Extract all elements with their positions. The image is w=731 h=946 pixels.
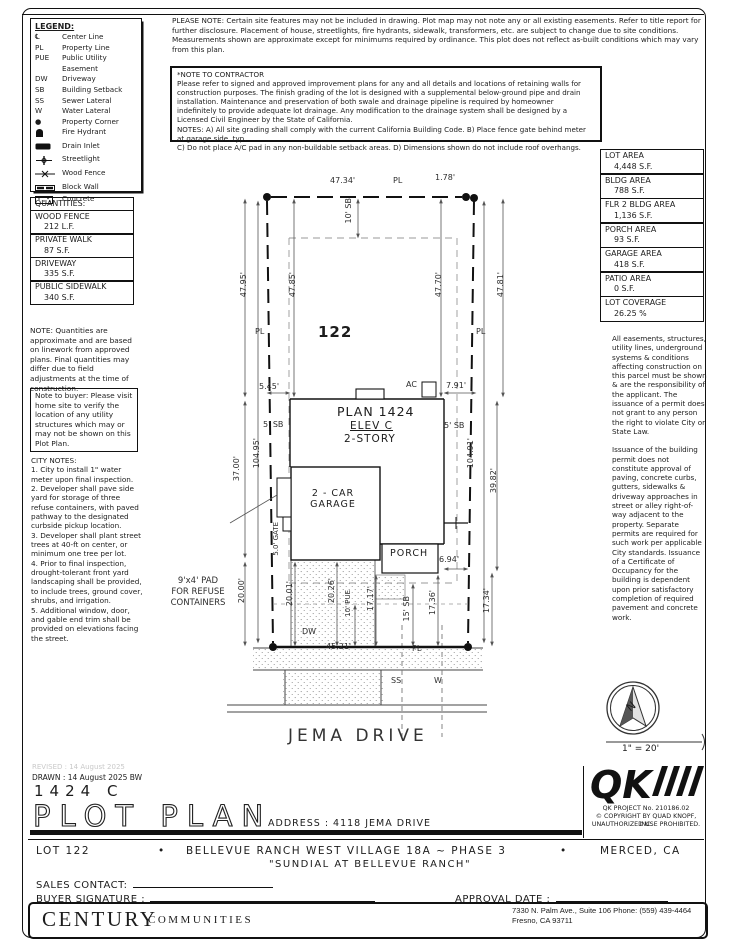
property-corner	[462, 193, 470, 201]
property-line-label: PL	[255, 327, 264, 336]
dim-front-mid: 17.36'	[428, 590, 437, 615]
plan-name: PLAN 1424	[337, 404, 414, 419]
driveway-symbol: DW	[35, 74, 62, 85]
north-arrow-icon	[598, 676, 710, 754]
city-notes: CITY NOTES: 1. City to install 1" water …	[31, 456, 145, 643]
dim-drive-right: 20.26'	[327, 578, 336, 603]
quantities-table: QUANTITIES: WOOD FENCE212 L.F. PRIVATE W…	[30, 198, 134, 305]
contractor-note-title: *NOTE TO CONTRACTOR	[177, 70, 595, 79]
dim-porch-side: 6.94'	[439, 555, 459, 564]
refuse-pad-leader	[230, 495, 277, 523]
site-plan-drawing	[225, 165, 615, 780]
plan-elevation: ELEV C	[350, 420, 393, 432]
legend-item: SBBuilding Setback	[35, 85, 137, 96]
dim-jog: 1.78'	[435, 173, 455, 182]
sewer-lateral-label: SS	[391, 676, 401, 685]
property-corner	[464, 643, 472, 651]
dim-right-inner: 47.70'	[434, 272, 443, 297]
dim-front-setback: 15' SB	[402, 596, 411, 622]
legend-item: Fire Hydrant	[35, 127, 137, 141]
ac-label: AC	[406, 380, 417, 389]
block-wall-icon	[35, 184, 55, 195]
contractor-note-body: Please refer to signed and approved impr…	[177, 79, 595, 124]
band-divider	[28, 839, 704, 840]
legend-item: PLProperty Line	[35, 43, 137, 54]
driveway-label: DW	[302, 627, 316, 636]
community-name: BELLEVUE RANCH WEST VILLAGE 18A ~ PHASE …	[186, 845, 507, 857]
property-line-label: PL	[393, 176, 402, 185]
plan-code: 1424 C	[34, 782, 123, 800]
legend-item: ●Property Corner	[35, 117, 137, 128]
fire-hydrant-icon	[35, 129, 44, 141]
contractor-note-box: *NOTE TO CONTRACTOR Please refer to sign…	[170, 66, 602, 142]
property-line-label: PL	[476, 327, 485, 336]
site-address: ADDRESS : 4118 JEMA DRIVE	[268, 818, 431, 829]
qk-project-number: QK PROJECT No. 210186.02	[590, 805, 702, 813]
sewer-symbol: SS	[35, 96, 62, 107]
area-row: PORCH AREA93 S.F.	[600, 222, 704, 248]
approval-date-line[interactable]	[556, 892, 668, 902]
property-line-label: PL	[412, 644, 421, 653]
dim-left-outer: 47.95'	[239, 272, 248, 297]
quantity-row: DRIVEWAY335 S.F.	[30, 257, 134, 282]
quantity-row: PRIVATE WALK87 S.F.	[30, 233, 134, 258]
property-corner-icon: ●	[35, 117, 62, 128]
plot-plan-sheet: LEGEND: ℄Center Line PLProperty Line PUE…	[0, 0, 731, 946]
garage-outline	[291, 467, 380, 560]
dim-side-setback: 5' SB	[263, 420, 283, 429]
lot-number: 122	[318, 323, 352, 341]
revised-date: REVISED : 14 August 2025	[32, 763, 125, 771]
wood-fence-icon	[35, 170, 55, 182]
legend-item: Block Wall	[35, 182, 137, 195]
dim-side-setback: 5' SB	[444, 421, 464, 430]
svg-text:QK: QK	[590, 764, 654, 804]
dim-gate: 5.0' GATE	[272, 522, 280, 556]
quantities-note: NOTE: Quantities are approximate and are…	[30, 326, 138, 393]
streetlight-icon	[35, 156, 53, 169]
scale-label: 1" = 20'	[622, 744, 659, 754]
area-row: PATIO AREA0 S.F.	[600, 271, 704, 297]
dim-frontage: 45.21'	[326, 642, 351, 651]
builder-address: 7330 N. Palm Ave., Suite 106 Phone: (559…	[512, 906, 691, 925]
area-row: FLR 2 BLDG AREA1,136 S.F.	[600, 198, 704, 224]
dim-right-mid: 39.82'	[489, 468, 498, 493]
gate	[283, 517, 291, 531]
property-corner	[263, 193, 271, 201]
water-symbol: W	[35, 106, 62, 117]
buyer-signature-line[interactable]	[150, 892, 375, 902]
please-note: PLEASE NOTE: Certain site features may n…	[172, 16, 702, 54]
sheet-title: PLOT PLAN	[33, 799, 272, 833]
legend-item: Wood Fence	[35, 168, 137, 182]
refuse-pad-note: 9'x4' PAD FOR REFUSE CONTAINERS	[152, 576, 244, 609]
title-qk-divider	[583, 766, 584, 838]
dim-front-right: 17.34'	[482, 588, 491, 613]
dim-right-outer: 47.81'	[496, 272, 505, 297]
bay-window	[356, 389, 384, 399]
property-line-symbol: PL	[35, 43, 62, 54]
ac-pad	[422, 382, 436, 397]
legend-item: ℄Center Line	[35, 32, 137, 43]
dim-rear-setback: 10' SB	[344, 198, 353, 224]
legend-item: WWater Lateral	[35, 106, 137, 117]
city-notes-body: 1. City to install 1" water meter upon f…	[31, 465, 145, 643]
dim-side-left: 37.00'	[232, 456, 241, 481]
centerline-symbol: ℄	[35, 32, 62, 43]
qk-notice: UNAUTHORIZED USE PROHIBITED.	[590, 821, 702, 829]
drawn-date: DRAWN : 14 August 2025 BW	[32, 773, 142, 782]
qk-logo: QK	[588, 764, 706, 804]
bullet: •	[158, 845, 166, 857]
city-name: MERCED, CA	[600, 845, 681, 857]
area-row: LOT COVERAGE26.25 %	[600, 296, 704, 322]
project-subtitle: "SUNDIAL AT BELLEVUE RANCH"	[170, 859, 570, 870]
builder-brand-suffix: COMMUNITIES	[148, 914, 253, 926]
lot-label: LOT 122	[36, 845, 90, 857]
legend-item: DWDriveway	[35, 74, 137, 85]
dim-walk: 17.17'	[366, 586, 375, 611]
quantity-row: WOOD FENCE212 L.F.	[30, 210, 134, 235]
page-border-topline	[22, 14, 704, 15]
dim-rear-left: 5.45'	[259, 382, 279, 391]
porch-label: PORCH	[390, 548, 428, 559]
street-name: JEMA DRIVE	[288, 726, 428, 746]
plan-stories: 2-STORY	[344, 433, 396, 445]
legend-item: Drain Inlet	[35, 141, 137, 154]
refuse-pad-outline	[277, 478, 291, 517]
property-line-right	[468, 201, 474, 643]
garage-label: 2 - CAR GARAGE	[302, 488, 364, 510]
dim-left-depth: 104.95'	[252, 438, 261, 468]
dim-drive-left: 20.01'	[285, 581, 294, 606]
setback-symbol: SB	[35, 85, 62, 96]
contractor-note-items: NOTES: A) All site grading shall comply …	[177, 125, 595, 152]
jurisdiction-notes: All easements, structures, utility lines…	[612, 334, 707, 631]
public-sidewalk	[253, 649, 483, 670]
area-table: LOT AREA4,448 S.F. BLDG AREA788 S.F. FLR…	[600, 150, 704, 322]
drain-inlet-icon	[35, 143, 51, 154]
property-corner	[470, 194, 478, 202]
builder-brand: CENTURY	[42, 907, 158, 932]
private-walk	[375, 575, 405, 599]
area-row: GARAGE AREA418 S.F.	[600, 247, 704, 273]
property-corner	[269, 643, 277, 651]
buyer-note-box: Note to buyer: Please visit home site to…	[30, 388, 138, 452]
city-notes-title: CITY NOTES:	[31, 456, 145, 465]
pue-symbol: PUE	[35, 53, 62, 64]
driveway-apron	[283, 671, 383, 704]
title-underline	[30, 830, 582, 835]
dim-rear-right: 7.91'	[446, 381, 466, 390]
dim-rear-width: 47.34'	[330, 176, 355, 185]
legend-box: LEGEND: ℄Center Line PLProperty Line PUE…	[30, 18, 142, 192]
dim-pue: 10' PUE	[344, 590, 352, 617]
water-lateral-label: W	[434, 676, 442, 685]
quantity-row: PUBLIC SIDEWALK340 S.F.	[30, 280, 134, 305]
area-row: BLDG AREA788 S.F.	[600, 173, 704, 199]
dim-left-inner: 47.85'	[288, 272, 297, 297]
legend-item: PUEPublic Utility Easement	[35, 53, 137, 74]
dim-front-left: 20.00'	[237, 578, 246, 603]
legend-title: LEGEND:	[35, 22, 137, 31]
legend-item: SSSewer Lateral	[35, 96, 137, 107]
legend-item: Streetlight	[35, 154, 137, 169]
bullet: •	[560, 845, 568, 857]
dim-right-depth: 104.91'	[466, 438, 475, 468]
area-row: LOT AREA4,448 S.F.	[600, 149, 704, 175]
